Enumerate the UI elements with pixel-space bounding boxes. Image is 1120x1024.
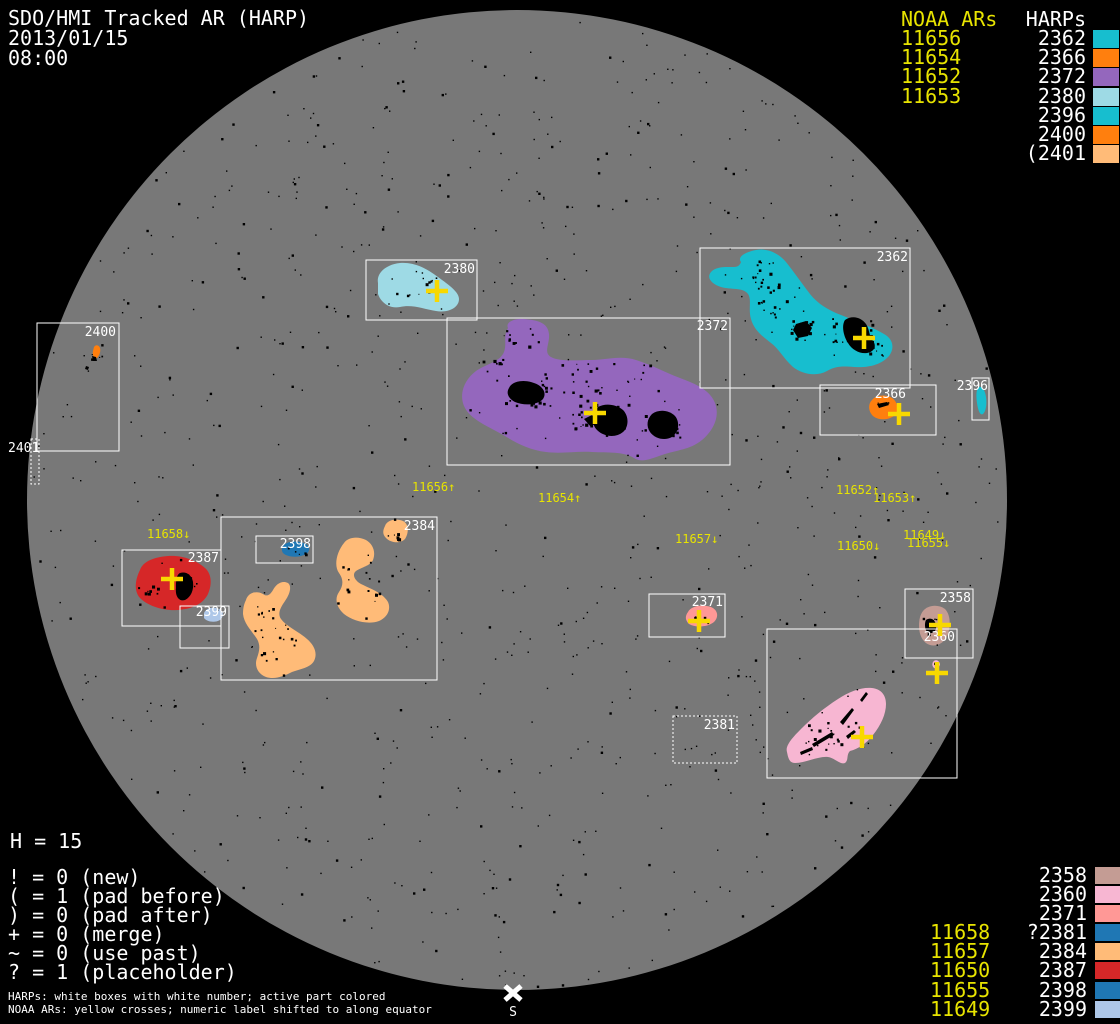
plot-title: SDO/HMI Tracked AR (HARP) [8,8,309,28]
noaa-disk-label-11653: 11653↑ [873,491,916,505]
solar-disk [27,10,1007,990]
noaa-disk-label-11656: 11656↑ [412,480,455,494]
harp-color-swatch [1093,107,1119,125]
south-pole-label: S [509,1005,517,1020]
solar-disk-plot: 2358 2360 2371 2381 2384 2387 2396 2398 … [0,0,1120,1024]
harp-color-swatch [1095,943,1120,960]
footnote-harps: HARPs: white boxes with white number; ac… [8,990,386,1003]
harp-color-swatch [1093,49,1119,67]
harp-color-swatch [1095,982,1120,999]
harp-color-swatch [1095,924,1120,941]
harp-color-swatch [1095,1001,1120,1018]
harp-color-swatch [1095,962,1120,979]
flag-line-placeholder: ? = 1 (placeholder) [8,962,237,982]
harp-box-label-2396: 2396 [957,379,988,394]
harp-box-label-2362: 2362 [877,250,908,265]
harp-color-swatch [1093,88,1119,106]
harp-color-swatch [1093,30,1119,48]
harp-box-label-2366: 2366 [875,387,906,402]
harp-count-line: H = 15 [10,831,82,851]
harp-box-label-2400: 2400 [85,325,116,340]
harp-box-label-2399: 2399 [196,605,227,620]
harp-color-swatch [1095,905,1120,922]
harp-tracker-screen: 2358 2360 2371 2381 2384 2387 2396 2398 … [0,0,1120,1024]
harp-color-swatch [1093,126,1119,144]
harp-box-label-2381: 2381 [704,718,735,733]
harp-box-label-2372: 2372 [697,319,728,334]
noaa-disk-label-11655: 11655↓ [907,536,950,550]
harp-color-swatch [1095,886,1120,903]
harp-box-label-2398: 2398 [280,537,311,552]
noaa-disk-label-11658: 11658↓ [147,527,190,541]
noaa-disk-label-11650: 11650↓ [837,539,880,553]
harp-box-label-2401: 2401 [8,441,39,456]
noaa-disk-label-11654: 11654↑ [538,491,581,505]
harp-color-swatch [1093,145,1119,163]
harp-box-label-2380: 2380 [444,262,475,277]
noaa-disk-label-11657: 11657↓ [675,532,718,546]
noaa-ar-number: 11649 [930,1000,990,1019]
harp-color-swatch [1093,68,1119,86]
harp-box-label-2371: 2371 [692,595,723,610]
harp-color-swatch [1095,867,1120,884]
harp-number: 2399 [1015,1000,1087,1019]
plot-time: 08:00 [8,48,68,68]
harp-number: (2401 [1014,144,1086,163]
plot-date: 2013/01/15 [8,28,128,48]
harp-box-label-2387: 2387 [188,551,219,566]
harp-box-label-2358: 2358 [940,591,971,606]
footnote-noaa-ars: NOAA ARs: yellow crosses; numeric label … [8,1003,432,1016]
harp-box-label-2384: 2384 [404,519,435,534]
noaa-ar-number: 11653 [901,87,961,106]
